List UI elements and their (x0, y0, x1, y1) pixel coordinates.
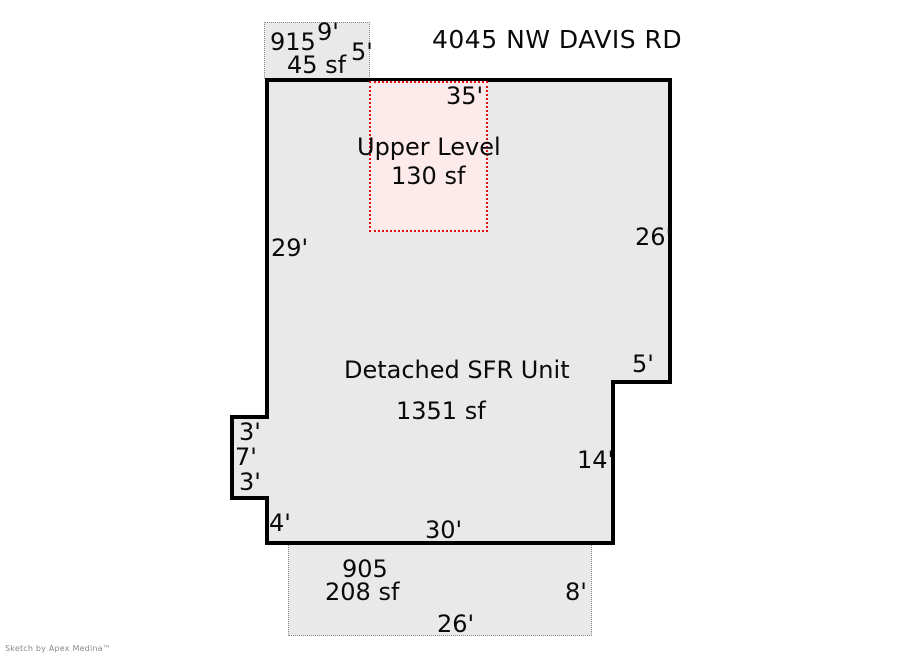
watermark: Sketch by Apex Medina™ (5, 645, 111, 653)
unit-905-area: 208 sf (325, 580, 399, 604)
dim-notch-left: 7' (235, 445, 257, 469)
dim-right-upper: 26' (635, 225, 672, 249)
unit-905-depth-dim: 8' (565, 580, 587, 604)
dim-notch-upper: 3' (239, 420, 261, 444)
address-title: 4045 NW DAVIS RD (432, 27, 682, 52)
dim-step-right: 5' (632, 352, 654, 376)
dim-right-lower: 14' (577, 448, 614, 472)
unit-915-width-dim: 9' (317, 20, 339, 44)
main-unit-label: Detached SFR Unit (344, 358, 570, 382)
upper-level-area: 130 sf (391, 164, 465, 188)
upper-level-label: Upper Level (357, 135, 501, 159)
dim-bottom-left: 4' (269, 511, 291, 535)
dim-left: 29' (271, 236, 308, 260)
floorplan-sketch: 4045 NW DAVIS RD 915 9' 5' 45 sf 35' Upp… (0, 0, 900, 660)
main-unit-area: 1351 sf (396, 399, 486, 423)
unit-915-area: 45 sf (287, 53, 346, 77)
unit-905-width-dim: 26' (437, 612, 474, 636)
dim-top: 35' (446, 84, 483, 108)
dim-notch-lower: 3' (239, 470, 261, 494)
unit-915-depth-dim: 5' (351, 40, 373, 64)
dim-bottom: 30' (425, 518, 462, 542)
